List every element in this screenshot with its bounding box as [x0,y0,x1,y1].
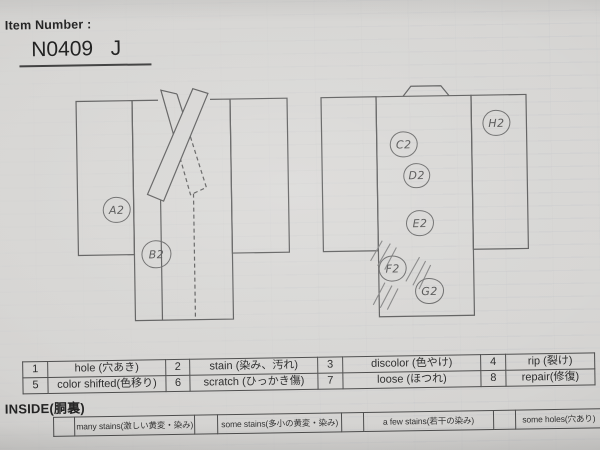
sheet-content: Item Number : N0409 J [0,0,600,450]
legend-num: 5 [23,377,48,393]
inside-option-label: some stains(多小の黄変・染み) [217,413,342,434]
legend-num: 1 [23,361,48,377]
legend-label: rip (裂け) [506,353,595,370]
inside-mark-cell [53,417,74,436]
back-left-sleeve [321,97,378,252]
legend-num: 4 [481,354,506,370]
legend-label: color shifted(色移り) [48,376,166,394]
inside-lining-title: INSIDE(胴裏) [5,397,85,417]
front-hidden-edge-line [193,194,195,320]
legend-num: 3 [318,357,343,373]
legend-label: loose (ほつれ) [343,371,481,389]
legend-num: 8 [481,370,506,386]
legend-num: 2 [166,359,190,375]
legend-num: 7 [318,373,343,389]
item-number-label: Item Number : [5,17,92,32]
inside-option-label: some holes(穴あり) [515,409,600,429]
inside-option-label: many stains(激しい黄変・染み) [75,415,195,436]
legend-label: scratch (ひっかき傷) [190,373,318,391]
legend-num: 6 [166,375,190,391]
collar-under-band [161,90,178,131]
inside-mark-cell [342,413,364,432]
front-left-sleeve [76,101,134,256]
inspection-sheet-photo: Item Number : N0409 J [0,0,600,450]
inside-option-label: a few stains(若干の染み) [364,410,494,431]
collar-over-band [146,88,210,201]
front-right-sleeve [230,98,289,253]
inside-mark-cell [195,415,218,434]
kimono-outline-drawing [58,76,542,354]
item-number-value: N0409 J [31,37,121,62]
legend-label: hole (穴あき) [48,360,166,378]
legend-label: repair(修復) [506,369,595,386]
back-collar [403,86,449,97]
kimono-diagrams: A2 B2 C2 D2 E2 F2 G2 H2 [58,76,542,354]
inside-mark-cell [493,410,515,429]
